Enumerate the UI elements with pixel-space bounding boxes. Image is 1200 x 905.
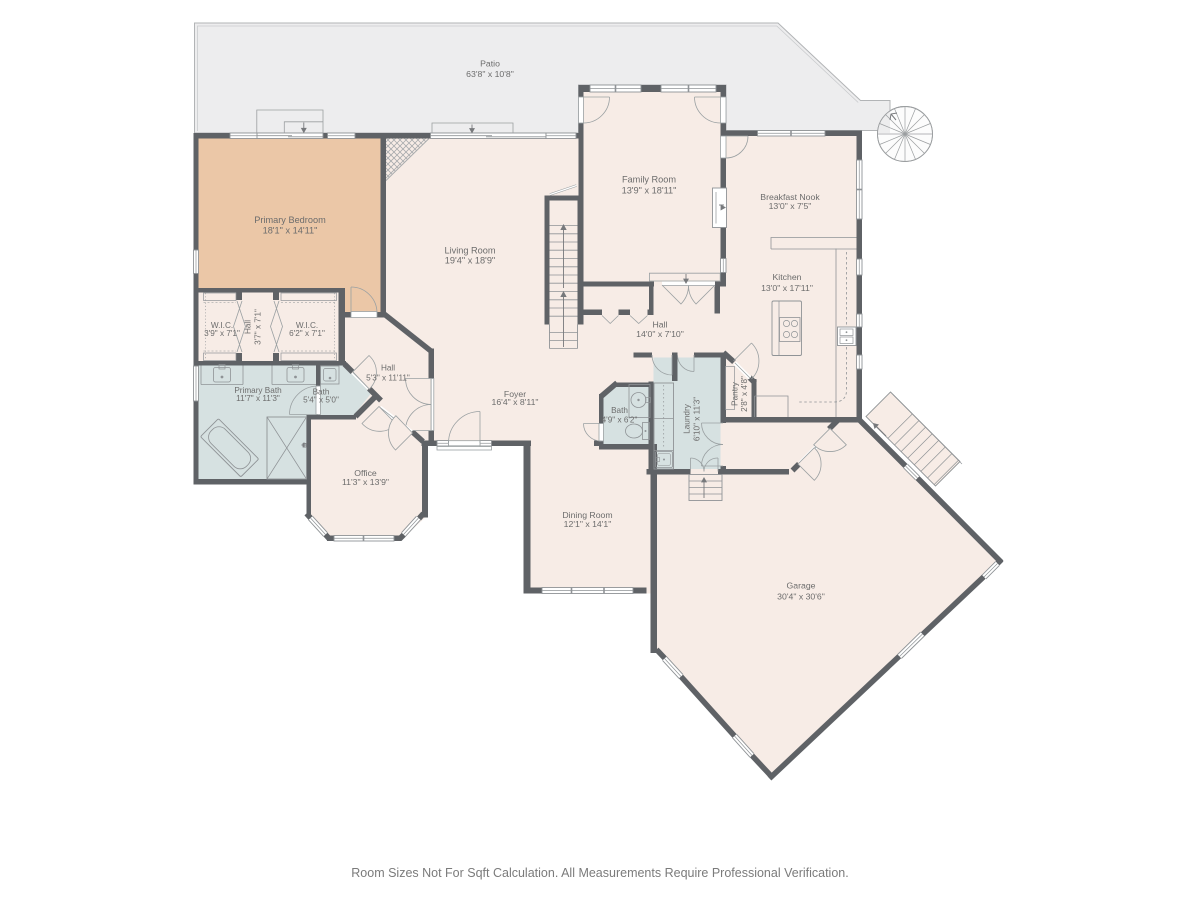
svg-text:12'1" x 14'1": 12'1" x 14'1"	[564, 519, 612, 529]
svg-text:13'0" x 17'11": 13'0" x 17'11"	[761, 283, 813, 293]
svg-text:Room Sizes Not For Sqft Calcul: Room Sizes Not For Sqft Calculation. All…	[351, 866, 848, 880]
svg-text:11'3" x 13'9": 11'3" x 13'9"	[342, 477, 389, 487]
svg-text:6'10" x 11'3": 6'10" x 11'3"	[693, 397, 702, 441]
svg-text:Bath: Bath	[611, 406, 628, 415]
svg-text:5'4" x 5'0": 5'4" x 5'0"	[303, 396, 339, 405]
svg-text:Hall: Hall	[244, 320, 253, 334]
svg-text:13'0" x 7'5": 13'0" x 7'5"	[769, 201, 812, 211]
svg-text:11'7" x 11'3": 11'7" x 11'3"	[236, 394, 280, 403]
svg-text:4'9" x 6'2": 4'9" x 6'2"	[602, 416, 638, 425]
svg-text:Patio: Patio	[480, 59, 500, 69]
svg-text:Hall: Hall	[381, 364, 395, 373]
svg-text:18'1" x 14'11": 18'1" x 14'11"	[263, 226, 318, 236]
svg-text:3'9" x 7'1": 3'9" x 7'1"	[204, 329, 240, 338]
svg-text:5'3" x 11'11": 5'3" x 11'11"	[366, 374, 410, 383]
svg-text:Kitchen: Kitchen	[773, 272, 802, 282]
svg-text:2'8" x 4'8": 2'8" x 4'8"	[740, 376, 749, 412]
svg-text:6'2" x 7'1": 6'2" x 7'1"	[289, 329, 325, 338]
svg-text:3'7" x 7'1": 3'7" x 7'1"	[254, 309, 263, 345]
svg-text:Hall: Hall	[653, 320, 668, 330]
svg-text:63'8" x 10'8": 63'8" x 10'8"	[466, 69, 514, 79]
svg-text:Garage: Garage	[787, 581, 816, 591]
svg-text:13'9" x 18'11": 13'9" x 18'11"	[622, 186, 677, 196]
svg-text:Primary Bedroom: Primary Bedroom	[254, 215, 326, 225]
svg-text:Pantry: Pantry	[731, 381, 740, 406]
svg-text:19'4" x 18'9": 19'4" x 18'9"	[445, 256, 495, 266]
svg-text:16'4" x 8'11": 16'4" x 8'11"	[492, 397, 539, 407]
svg-text:Laundry: Laundry	[683, 403, 692, 433]
svg-text:Family Room: Family Room	[622, 175, 676, 185]
svg-text:30'4" x 30'6": 30'4" x 30'6"	[777, 592, 825, 602]
svg-text:14'0" x 7'10": 14'0" x 7'10"	[636, 329, 684, 339]
svg-text:Living Room: Living Room	[444, 246, 495, 256]
